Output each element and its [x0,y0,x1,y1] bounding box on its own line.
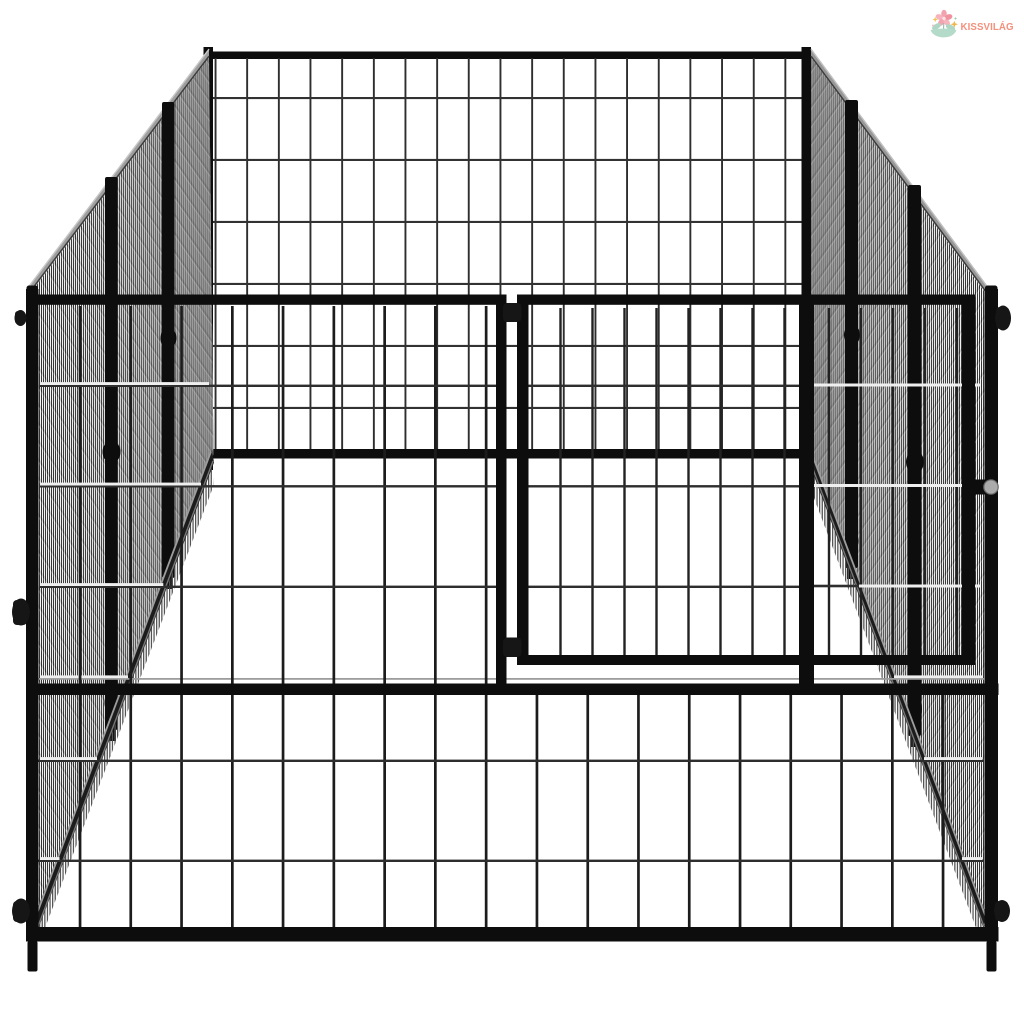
svg-text:KISSVILÁG: KISSVILÁG [961,22,1014,33]
